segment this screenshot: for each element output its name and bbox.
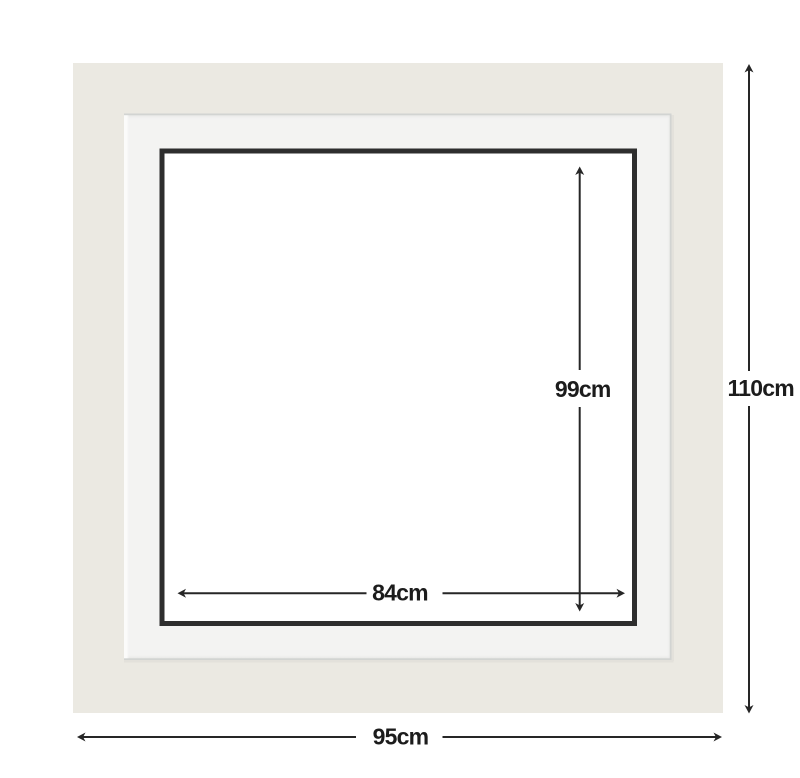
- svg-text:84cm: 84cm: [372, 580, 428, 606]
- svg-text:95cm: 95cm: [373, 724, 429, 750]
- svg-text:99cm: 99cm: [555, 376, 611, 402]
- svg-text:110cm: 110cm: [728, 375, 795, 401]
